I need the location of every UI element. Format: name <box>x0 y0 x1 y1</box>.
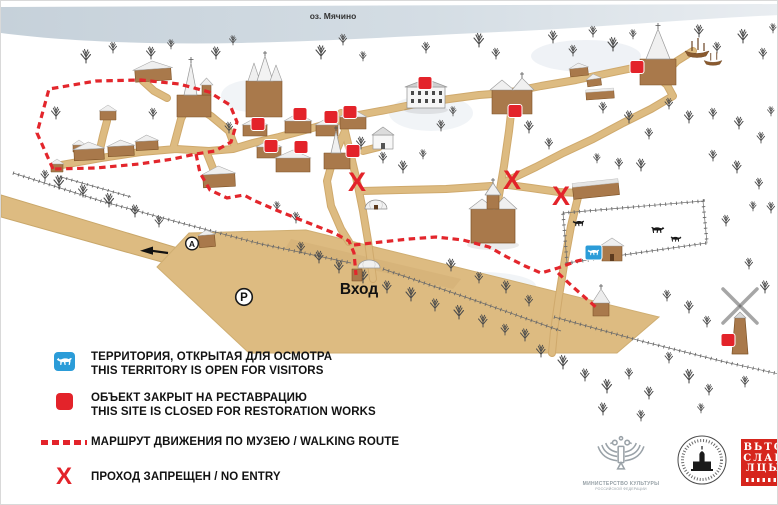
hut <box>99 105 117 120</box>
legend-closed-site-en: THIS SITE IS CLOSED FOR RESTORATION WORK… <box>91 405 376 419</box>
village-house <box>106 139 135 156</box>
open-territory-icon <box>54 352 75 371</box>
legend-item-walking-route: МАРШРУТ ДВИЖЕНИЯ ПО МУЗЕЮ / WALKING ROUT… <box>37 431 482 453</box>
legend-item-open-territory: ТЕРРИТОРИЯ, ОТКРЫТАЯ ДЛЯ ОСМОТРА THIS TE… <box>37 350 482 379</box>
legend: ТЕРРИТОРИЯ, ОТКРЫТАЯ ДЛЯ ОСМОТРА THIS TE… <box>37 350 482 501</box>
entrance-label: Вход <box>340 281 378 298</box>
small-chapel <box>592 284 610 316</box>
multidome-church <box>246 51 282 117</box>
museum-map-poster: оз. Мячино <box>0 0 778 505</box>
legend-open-territory-ru: ТЕРРИТОРИЯ, ОТКРЫТАЯ ДЛЯ ОСМОТРА <box>91 350 332 364</box>
no-entry-x: X <box>503 165 521 195</box>
no-entry-icon: X <box>56 465 72 489</box>
long-house <box>586 88 615 100</box>
legend-walking-route: МАРШРУТ ДВИЖЕНИЯ ПО МУЗЕЮ / WALKING ROUT… <box>91 435 399 449</box>
no-entry-x: X <box>348 167 366 197</box>
vito-ornament <box>746 478 778 482</box>
ministry-subname: РОССИЙСКОЙ ФЕДЕРАЦИИ <box>579 487 663 491</box>
stable-building <box>572 179 619 200</box>
legend-item-no-entry: X ПРОХОД ЗАПРЕЩЕН / NO ENTRY <box>37 465 482 489</box>
lakeside-church <box>640 23 676 85</box>
open-territory-marker <box>585 245 602 260</box>
ministry-of-culture-logo: МИНИСТЕРСТВО КУЛЬТУРЫ РОССИЙСКОЙ ФЕДЕРАЦ… <box>579 434 663 491</box>
vitoslavlitsy-logo: ВЬТО СЛАВ ЛЦЫ <box>741 439 778 486</box>
paddock-hut <box>600 238 624 261</box>
footer-logos: МИНИСТЕРСТВО КУЛЬТУРЫ РОССИЙСКОЙ ФЕДЕРАЦ… <box>579 434 778 491</box>
village-house <box>201 165 236 188</box>
bus-stop-label: А <box>189 239 195 249</box>
no-entry-x: X <box>552 181 570 211</box>
legend-closed-site-ru: ОБЪЕКТ ЗАКРЫТ НА РЕСТАВРАЦИЮ <box>91 391 376 405</box>
vito-line3: ЛЦЫ <box>741 464 778 475</box>
legend-item-closed-site: ОБЪЕКТ ЗАКРЫТ НА РЕСТАВРАЦИЮ THIS SITE I… <box>37 391 482 420</box>
closed-site-icon <box>56 393 73 410</box>
museum-reserve-seal-icon <box>676 434 728 486</box>
parking-label: Р <box>240 292 248 304</box>
parking-marker: Р <box>236 289 253 306</box>
museum-reserve-logo <box>676 434 728 491</box>
bus-stop-marker: А <box>186 237 199 250</box>
lake-label: оз. Мячино <box>310 11 357 21</box>
barn-building <box>132 60 173 83</box>
walking-route-icon <box>41 440 87 445</box>
legend-no-entry: ПРОХОД ЗАПРЕЩЕН / NO ENTRY <box>91 470 281 484</box>
double-eagle-icon <box>591 434 651 476</box>
horses <box>573 221 682 242</box>
parking-area <box>157 230 659 353</box>
legend-open-territory-en: THIS TERRITORY IS OPEN FOR VISITORS <box>91 364 332 378</box>
vito-line1: ВЬТО <box>741 443 778 454</box>
village-house <box>134 134 159 150</box>
yurt <box>365 200 387 210</box>
stone-chapel <box>372 127 394 149</box>
